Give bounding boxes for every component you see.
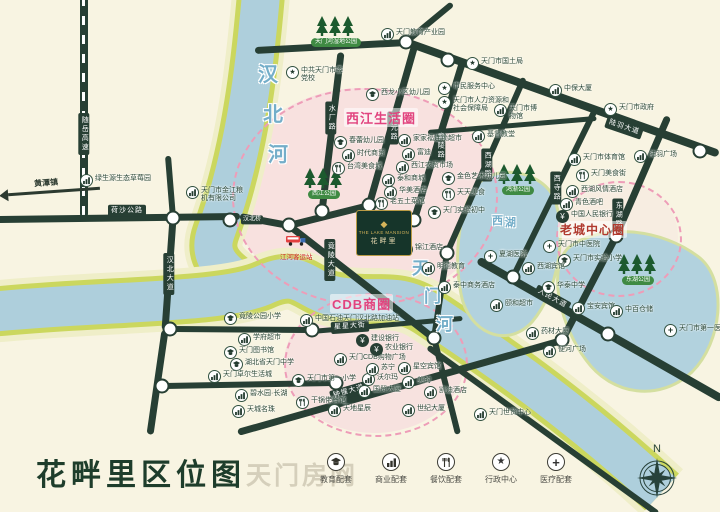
poi-label: 中国石油天门汉北路加油站 bbox=[315, 315, 399, 323]
road-label: 水厂路 bbox=[325, 102, 336, 135]
food-icon bbox=[576, 169, 589, 182]
shop-icon bbox=[472, 130, 485, 143]
shop-icon bbox=[300, 314, 313, 327]
poi-label: 夏湖医院 bbox=[499, 251, 527, 259]
poi-shop: 天门市博物馆 bbox=[494, 104, 541, 121]
road-label: 荷沙公路 bbox=[108, 205, 146, 217]
poi-label: 老五土菜馆 bbox=[390, 198, 425, 206]
poi-label: 泰中商务酒店 bbox=[453, 282, 495, 290]
poi-label: 中共天门市委党校 bbox=[301, 67, 343, 83]
legend-item-education: 教育配套 bbox=[320, 453, 352, 485]
dining-icon bbox=[437, 453, 455, 471]
legend-item-medical: + 医疗配套 bbox=[540, 453, 572, 485]
road-junction bbox=[441, 53, 456, 68]
food-icon bbox=[332, 162, 345, 175]
shop-icon bbox=[334, 353, 347, 366]
government-icon: ★ bbox=[492, 453, 510, 471]
poi-label: 颐和超市 bbox=[505, 300, 533, 308]
poi-food: 干锅佬餐馆 bbox=[296, 396, 346, 409]
poi-label: 陆羽广场 bbox=[649, 151, 677, 159]
road-segment bbox=[165, 156, 176, 218]
poi-label: 天门市第一小学 bbox=[307, 375, 356, 383]
star-icon: ★ bbox=[438, 96, 451, 109]
shop-icon bbox=[490, 299, 503, 312]
shop-icon bbox=[474, 408, 487, 421]
star-icon: ★ bbox=[466, 57, 479, 70]
poi-star: ★市民服务中心 bbox=[438, 82, 495, 95]
poi-label: 华美酒店 bbox=[399, 187, 427, 195]
project-name-en: THE LAKE MANSION bbox=[359, 230, 409, 235]
shop-icon bbox=[238, 333, 251, 346]
poi-shop: 明德教育 bbox=[422, 262, 465, 275]
poi-shop: 天门市体育馆 bbox=[568, 153, 625, 166]
shop-icon bbox=[402, 376, 415, 389]
poi-label: 竟陵公园小学 bbox=[239, 313, 281, 321]
shop-icon bbox=[422, 262, 435, 275]
poi-shop: 学府超市 bbox=[238, 333, 281, 346]
road-junction bbox=[506, 270, 521, 285]
poi-shop: 家家福连锁超市 bbox=[398, 134, 462, 147]
road-segment bbox=[170, 326, 312, 333]
legend-item-business: 商业配套 bbox=[375, 453, 407, 485]
shop-icon bbox=[634, 150, 647, 163]
bank-icon: ¥ bbox=[556, 210, 569, 223]
star-icon: ★ bbox=[438, 82, 451, 95]
road-junction bbox=[163, 322, 178, 337]
park-label: 西江公园 bbox=[308, 190, 340, 199]
map-layer: 随岳高速荷沙公路汉北桥汉北大道竟陵大道水厂路状元路竟陵路西湖路西寺路东湖路陆羽大… bbox=[0, 0, 720, 512]
legend-item-dining: 餐饮配套 bbox=[430, 453, 462, 485]
poi-label: 华泰中学 bbox=[557, 282, 585, 290]
bus-station: 江河客运站 bbox=[280, 233, 313, 261]
shop-icon bbox=[438, 281, 451, 294]
poi-star: ★中共天门市委党校 bbox=[286, 66, 343, 83]
river-name-char: 北 bbox=[263, 98, 283, 127]
poi-food: 天天美食 bbox=[442, 188, 485, 201]
poi-label: 建设银行 bbox=[371, 335, 399, 343]
food-icon bbox=[296, 396, 309, 409]
poi-shop: 药材大厦 bbox=[526, 327, 569, 340]
river-name-char: 湖 bbox=[505, 214, 516, 230]
poi-shop: 天门卓尔生活城 bbox=[208, 370, 272, 383]
poi-label: 天门实验初中 bbox=[443, 207, 485, 215]
page-title: 花畔里区位图 bbox=[36, 450, 246, 494]
shop-icon bbox=[208, 370, 221, 383]
compass-north-label: N bbox=[653, 443, 661, 455]
poi-label: 金色艺术幼儿园 bbox=[457, 173, 506, 181]
poi-star: ★天门市政府 bbox=[604, 103, 654, 116]
food-icon bbox=[375, 197, 388, 210]
road-label: 竟陵大道 bbox=[324, 239, 335, 281]
road-junction bbox=[166, 211, 181, 226]
edu-icon bbox=[292, 374, 305, 387]
poi-edu: 西龙小区幼儿园 bbox=[366, 88, 430, 101]
poi-label: 西湖宾馆 bbox=[537, 263, 565, 271]
poi-label: 碧水园·长湖 bbox=[250, 390, 287, 398]
shop-icon bbox=[522, 262, 535, 275]
poi-label: 天门美食街 bbox=[591, 170, 626, 178]
project-name: 花畔里 bbox=[371, 236, 398, 246]
medical-icon: + bbox=[547, 453, 565, 471]
poi-label: 天城名珠 bbox=[247, 406, 275, 414]
med-icon: + bbox=[543, 240, 556, 253]
road-label: 汉北大道 bbox=[163, 253, 174, 295]
poi-label: 星空宾馆 bbox=[413, 363, 441, 371]
legend: 教育配套 商业配套 餐饮配套 ★ 行政中心 + 医疗配套 bbox=[320, 453, 572, 485]
compass: N bbox=[628, 440, 686, 509]
shop-icon bbox=[494, 104, 507, 117]
poi-shop: 天城名珠 bbox=[232, 405, 275, 418]
poi-label: 春蕾幼儿园 bbox=[349, 137, 384, 145]
shop-icon bbox=[402, 404, 415, 417]
edu-icon bbox=[428, 206, 441, 219]
poi-label: 天天美食 bbox=[457, 189, 485, 197]
poi-label: 西湖风情酒店 bbox=[581, 186, 623, 194]
poi-label: 天地星辰 bbox=[343, 405, 371, 413]
poi-label: 中百仓储 bbox=[625, 306, 653, 314]
poi-shop: 时代商贸 bbox=[342, 149, 385, 162]
road-junction bbox=[282, 218, 297, 233]
poi-shop: 国贸大厦 bbox=[358, 385, 401, 398]
river-name-char: 河 bbox=[436, 310, 453, 335]
star-icon: ★ bbox=[286, 66, 299, 79]
poi-shop: 天门世贸中心 bbox=[474, 408, 531, 421]
poi-label: 青色酒吧 bbox=[575, 199, 603, 207]
bank-icon: ¥ bbox=[356, 334, 369, 347]
poi-label: 便河广场 bbox=[558, 346, 586, 354]
poi-med: +天门市中医院 bbox=[543, 240, 600, 253]
project-logo: ◆ THE LAKE MANSION 花畔里 bbox=[356, 210, 412, 256]
poi-shop: 颐和超市 bbox=[490, 299, 533, 312]
poi-label: 美的 bbox=[417, 377, 431, 385]
poi-label: 富迪 bbox=[417, 149, 431, 157]
poi-star: ★天门市国土局 bbox=[466, 57, 523, 70]
shop-icon bbox=[566, 185, 579, 198]
poi-shop: 碧水园·长湖 bbox=[235, 389, 287, 402]
poi-edu: 春蕾幼儿园 bbox=[334, 136, 384, 149]
direction-arrow-west: 黄潭镇 bbox=[8, 176, 100, 193]
poi-shop: 基督教堂 bbox=[472, 130, 515, 143]
shop-icon bbox=[402, 148, 415, 161]
poi-label: 泰和商城 bbox=[397, 175, 425, 183]
legend-label: 医疗配套 bbox=[540, 474, 572, 485]
edu-icon bbox=[542, 281, 555, 294]
poi-label: 家家福连锁超市 bbox=[413, 135, 462, 143]
road-segment bbox=[426, 345, 660, 512]
business-icon bbox=[382, 453, 400, 471]
park-label: 东湖公园 bbox=[622, 276, 654, 285]
poi-med: +夏湖医院 bbox=[484, 250, 527, 263]
bus-icon bbox=[285, 233, 307, 250]
poi-shop: 中保大厦 bbox=[549, 84, 592, 97]
shop-icon bbox=[572, 302, 585, 315]
poi-label: 湖北省天门中学 bbox=[245, 359, 294, 367]
poi-edu: 华泰中学 bbox=[542, 281, 585, 294]
poi-edu: 天门实验初中 bbox=[428, 206, 485, 219]
poi-label: 天门市政府 bbox=[619, 104, 654, 112]
shop-icon bbox=[424, 386, 437, 399]
food-icon bbox=[442, 188, 455, 201]
edu-icon bbox=[224, 312, 237, 325]
compass-rose: N bbox=[628, 440, 686, 504]
poi-edu: 天门市第一小学 bbox=[292, 374, 356, 387]
road-junction bbox=[223, 213, 238, 228]
road-junction bbox=[693, 144, 708, 159]
poi-shop: 中国石油天门汉北路加油站 bbox=[300, 314, 399, 327]
location-map-canvas: 随岳高速荷沙公路汉北桥汉北大道竟陵大道水厂路状元路竟陵路西湖路西寺路东湖路陆羽大… bbox=[0, 0, 720, 512]
med-icon: + bbox=[664, 324, 677, 337]
road-label: 汉北桥 bbox=[241, 215, 263, 224]
edu-icon bbox=[366, 88, 379, 101]
shop-icon bbox=[398, 134, 411, 147]
poi-label: 天门市中医院 bbox=[558, 241, 600, 249]
shop-icon bbox=[232, 405, 245, 418]
poi-shop: 西湖宾馆 bbox=[522, 262, 565, 275]
poi-shop: 中百仓储 bbox=[610, 305, 653, 318]
poi-label: 天门市博物馆 bbox=[509, 105, 541, 121]
shop-icon bbox=[396, 161, 409, 174]
poi-label: 台湾美食城 bbox=[347, 163, 382, 171]
poi-label: 天门世贸中心 bbox=[489, 409, 531, 417]
poi-label: 天门市金江粮机有限公司 bbox=[201, 187, 249, 203]
road-junction bbox=[155, 379, 170, 394]
poi-label: 天门教育产业园 bbox=[396, 29, 445, 37]
river-name-char: 汉 bbox=[258, 58, 278, 87]
poi-label: 锦江酒店 bbox=[415, 244, 443, 252]
shop-icon bbox=[543, 345, 556, 358]
poi-label: 干锅佬餐馆 bbox=[311, 397, 346, 405]
poi-label: 西江农贸市场 bbox=[411, 162, 453, 170]
poi-edu: 金色艺术幼儿园 bbox=[442, 172, 506, 185]
poi-shop: 泰中商务酒店 bbox=[438, 281, 495, 294]
shop-icon bbox=[358, 385, 371, 398]
poi-shop: 凯迪酒店 bbox=[424, 386, 467, 399]
med-icon: + bbox=[484, 250, 497, 263]
shop-icon bbox=[568, 153, 581, 166]
shop-icon bbox=[235, 389, 248, 402]
poi-shop: 世纪大厦 bbox=[402, 404, 445, 417]
shop-icon bbox=[186, 186, 199, 199]
poi-shop: 富迪 bbox=[402, 148, 431, 161]
road-label: 随岳高速 bbox=[78, 113, 89, 155]
poi-label: 天门图书馆 bbox=[239, 347, 274, 355]
park-label: 天门河湿地公园 bbox=[311, 38, 361, 47]
poi-label: 天门市第一医院 bbox=[679, 325, 720, 333]
river-name-char: 西 bbox=[492, 212, 503, 228]
edu-icon bbox=[334, 136, 347, 149]
poi-shop: 陆羽广场 bbox=[634, 150, 677, 163]
poi-label: 天门卓尔生活城 bbox=[223, 371, 272, 379]
poi-food: 老五土菜馆 bbox=[375, 197, 425, 210]
poi-edu: 天门市实验小学 bbox=[558, 254, 622, 267]
river-name-char: 河 bbox=[268, 138, 288, 167]
zone-label: 西江生活圈 bbox=[344, 108, 418, 127]
shop-icon bbox=[610, 305, 623, 318]
legend-label: 行政中心 bbox=[485, 474, 517, 485]
poi-food: 天门美食街 bbox=[576, 169, 626, 182]
shop-icon bbox=[526, 327, 539, 340]
poi-label: 学府超市 bbox=[253, 334, 281, 342]
poi-label: 时代商贸 bbox=[357, 150, 385, 158]
poi-label: 西龙小区幼儿园 bbox=[381, 89, 430, 97]
road-junction bbox=[601, 327, 616, 342]
park-label: 鸿渐公园 bbox=[502, 186, 534, 195]
poi-label: 国贸大厦 bbox=[373, 386, 401, 394]
poi-label: 基督教堂 bbox=[487, 131, 515, 139]
poi-label: 天门市体育馆 bbox=[583, 154, 625, 162]
legend-label: 教育配套 bbox=[320, 474, 352, 485]
zone-label: CDB商圈 bbox=[330, 294, 393, 313]
shop-icon bbox=[342, 149, 355, 162]
education-icon bbox=[327, 453, 345, 471]
poi-label: 凯迪酒店 bbox=[439, 387, 467, 395]
poi-label: 天门市国土局 bbox=[481, 58, 523, 66]
poi-label: 市民服务中心 bbox=[453, 83, 495, 91]
poi-shop: 西湖风情酒店 bbox=[566, 185, 623, 198]
poi-food: 台湾美食城 bbox=[332, 162, 382, 175]
poi-label: 天门市实验小学 bbox=[573, 255, 622, 263]
poi-shop: 便河广场 bbox=[543, 345, 586, 358]
poi-label: 中国人民银行 bbox=[571, 211, 613, 219]
poi-shop: 天门教育产业园 bbox=[381, 28, 445, 41]
poi-shop: 宝安宾馆 bbox=[572, 302, 615, 315]
bus-station-label: 江河客运站 bbox=[280, 251, 313, 261]
poi-bank: ¥中国人民银行 bbox=[556, 210, 613, 223]
zone-label: 老城中心圈 bbox=[558, 221, 627, 238]
legend-label: 商业配套 bbox=[375, 474, 407, 485]
shop-icon bbox=[381, 28, 394, 41]
poi-bank: ¥建设银行 bbox=[356, 334, 399, 347]
poi-label: 中保大厦 bbox=[564, 85, 592, 93]
shop-icon bbox=[549, 84, 562, 97]
legend-label: 餐饮配套 bbox=[430, 474, 462, 485]
poi-label: 明德教育 bbox=[437, 263, 465, 271]
project-emblem-icon: ◆ bbox=[381, 220, 388, 229]
road-junction bbox=[315, 204, 330, 219]
poi-med: +天门市第一医院 bbox=[664, 324, 720, 337]
poi-label: 绿生源生态草莓园 bbox=[95, 175, 151, 183]
legend-item-government: ★ 行政中心 bbox=[485, 453, 517, 485]
poi-shop: 天门市金江粮机有限公司 bbox=[186, 186, 249, 203]
poi-label: 世纪大厦 bbox=[417, 405, 445, 413]
poi-label: 药材大厦 bbox=[541, 328, 569, 336]
star-icon: ★ bbox=[604, 103, 617, 116]
poi-edu: 竟陵公园小学 bbox=[224, 312, 281, 325]
edu-icon bbox=[442, 172, 455, 185]
